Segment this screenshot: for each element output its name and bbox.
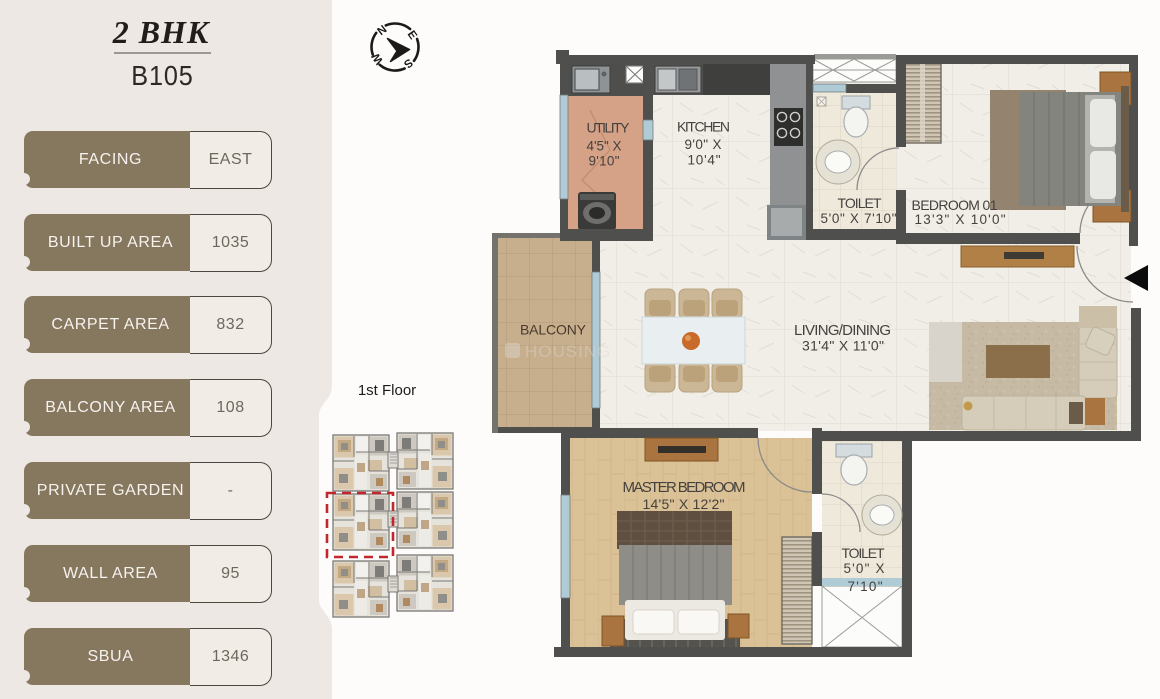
svg-text:5'0" X 7'10": 5'0" X 7'10"	[821, 211, 897, 226]
svg-text:TOILET: TOILET	[838, 195, 882, 211]
svg-text:10'4": 10'4"	[688, 153, 721, 168]
svg-text:9'10": 9'10"	[589, 154, 620, 169]
svg-text:HOUSING: HOUSING	[525, 342, 611, 361]
svg-text:9'0" X: 9'0" X	[685, 137, 722, 152]
svg-text:14'5" X 12'2": 14'5" X 12'2"	[643, 496, 725, 512]
svg-text:5'0" X: 5'0" X	[844, 561, 885, 576]
svg-text:TOILET: TOILET	[842, 545, 885, 561]
svg-text:KITCHEN: KITCHEN	[677, 119, 730, 135]
svg-text:4'5" X: 4'5" X	[587, 139, 622, 154]
svg-text:LIVING/DINING: LIVING/DINING	[794, 322, 891, 339]
svg-text:BALCONY: BALCONY	[520, 322, 587, 338]
svg-text:7'10": 7'10"	[848, 579, 883, 594]
svg-text:MASTER BEDROOM: MASTER BEDROOM	[623, 479, 746, 496]
svg-text:UTILITY: UTILITY	[587, 120, 631, 136]
svg-text:13'3" X 10'0": 13'3" X 10'0"	[915, 212, 1006, 227]
svg-text:31'4" X 11'0": 31'4" X 11'0"	[802, 338, 884, 354]
svg-text:BEDROOM 01: BEDROOM 01	[912, 197, 998, 213]
